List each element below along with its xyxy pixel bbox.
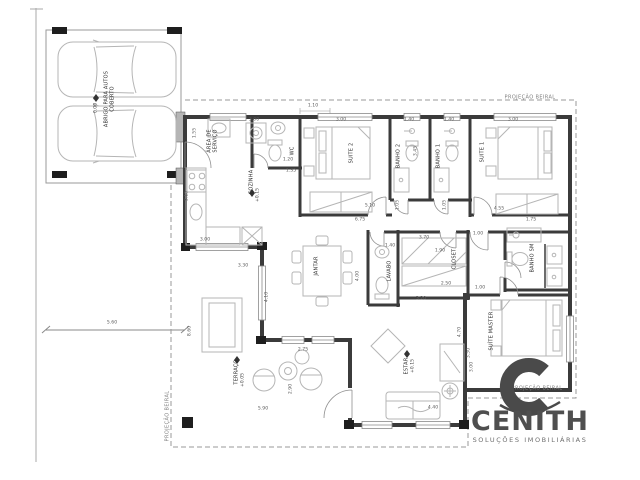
lounger — [202, 298, 242, 352]
dim-label: 1.55 — [194, 128, 199, 138]
dim-label: 4.70 — [459, 327, 464, 337]
dim-label: 1.75 — [526, 219, 536, 224]
site-boundary-lines — [30, 8, 330, 462]
dim-label: 1.40 — [385, 245, 395, 250]
level-label-estar: +0.15 — [412, 359, 417, 373]
annotation-roof-projection-top: PROJEÇÃO BEIRAL — [505, 96, 556, 101]
dim-label: 1.10 — [308, 105, 318, 110]
car — [58, 104, 176, 163]
dim-label: 1.40 — [404, 119, 414, 124]
dim-label: 4.10 — [266, 292, 271, 302]
dim-label: 2.50 — [441, 283, 451, 288]
dim-label: 1.35 — [286, 170, 296, 175]
carport — [46, 27, 185, 184]
room-label-carport-2: COBERTO — [111, 86, 116, 112]
brand-tagline: SOLUÇÕES IMOBILIÁRIAS — [455, 436, 605, 444]
dim-label: 5.90 — [258, 408, 268, 413]
dim-label: 3.45 — [415, 146, 420, 156]
wc-fixtures — [268, 122, 285, 161]
dim-label: 3.00 — [336, 119, 346, 124]
room-label-wc: WC — [291, 147, 296, 156]
dim-label: 1.00 — [475, 287, 485, 292]
dim-label: 2.90 — [290, 384, 295, 394]
room-label-lavabo: LAVABO — [388, 261, 393, 282]
wardrobe-suite2 — [310, 192, 372, 212]
bed-suite-master — [491, 300, 562, 356]
dining-table — [292, 236, 352, 306]
bed-suite2 — [304, 127, 370, 179]
dim-label: 3.00 — [200, 239, 210, 244]
dim-label: 3.70 — [419, 237, 429, 242]
level-label-carport: 0.00 — [95, 103, 100, 113]
carport-columns — [52, 27, 182, 178]
dim-label: 4.40 — [428, 407, 438, 412]
dim-label: 1.00 — [473, 233, 483, 238]
dim-label: 1.90 — [435, 250, 445, 255]
room-label-banho-sm: BANHO SM — [531, 244, 536, 273]
wardrobe-suite1 — [496, 194, 558, 214]
dim-label: 3.20 — [416, 298, 426, 303]
room-label-closet: CLOSET — [453, 249, 458, 270]
room-label-suite1: SUITE 1 — [481, 142, 486, 163]
annotation-roof-projection-left: PROJEÇÃO BEIRAL — [166, 391, 171, 442]
level-label-cozinha: +0.15 — [257, 188, 262, 202]
dim-label: 8.60 — [189, 326, 194, 336]
room-label-suite2: SUITE 2 — [350, 143, 355, 164]
level-label-terraco: +0.05 — [242, 373, 247, 387]
car — [58, 40, 176, 99]
dim-label: 1.20 — [283, 159, 293, 164]
brand-name: CENITH — [455, 408, 605, 435]
dim-label: 3.00 — [249, 119, 259, 124]
dim-label: 3.15 — [186, 191, 191, 201]
room-label-jantar: JANTAR — [315, 256, 320, 275]
dim-label: 1.05 — [397, 200, 402, 210]
room-label-banho2: BANHO 2 — [397, 144, 402, 168]
room-label-estar: ESTAR — [405, 358, 410, 375]
room-label-cozinha: COZINHA — [250, 170, 255, 195]
dim-label: 3.30 — [238, 265, 248, 270]
room-label-suite-master: SUÍTE MASTER — [490, 311, 495, 350]
brand-logo: CENITH SOLUÇÕES IMOBILIÁRIAS — [455, 352, 605, 447]
dim-label: 4.55 — [494, 208, 504, 213]
dim-label: 5.10 — [365, 205, 375, 210]
room-label-banho1: BANHO 1 — [437, 144, 442, 168]
dim-label: 5.60 — [107, 322, 117, 327]
dim-label: 3.00 — [508, 119, 518, 124]
dim-label: 1.05 — [444, 200, 449, 210]
dim-label: 4.00 — [357, 271, 362, 281]
dim-label: 6.75 — [355, 219, 365, 224]
dim-label: 2.75 — [298, 349, 308, 354]
dim-label: 1.40 — [444, 119, 454, 124]
room-label-servico-2: SERVIÇO — [214, 129, 219, 152]
level-marker — [93, 94, 99, 102]
room-label-terraco: TERRAÇO — [235, 359, 240, 384]
terrace-table-set — [253, 350, 322, 391]
bed-suite1 — [486, 127, 552, 179]
floorplan-canvas: ABRIGO PARA AUTOS COBERTO 0.00 ÁREA DE S… — [0, 0, 640, 480]
rug — [371, 329, 405, 363]
